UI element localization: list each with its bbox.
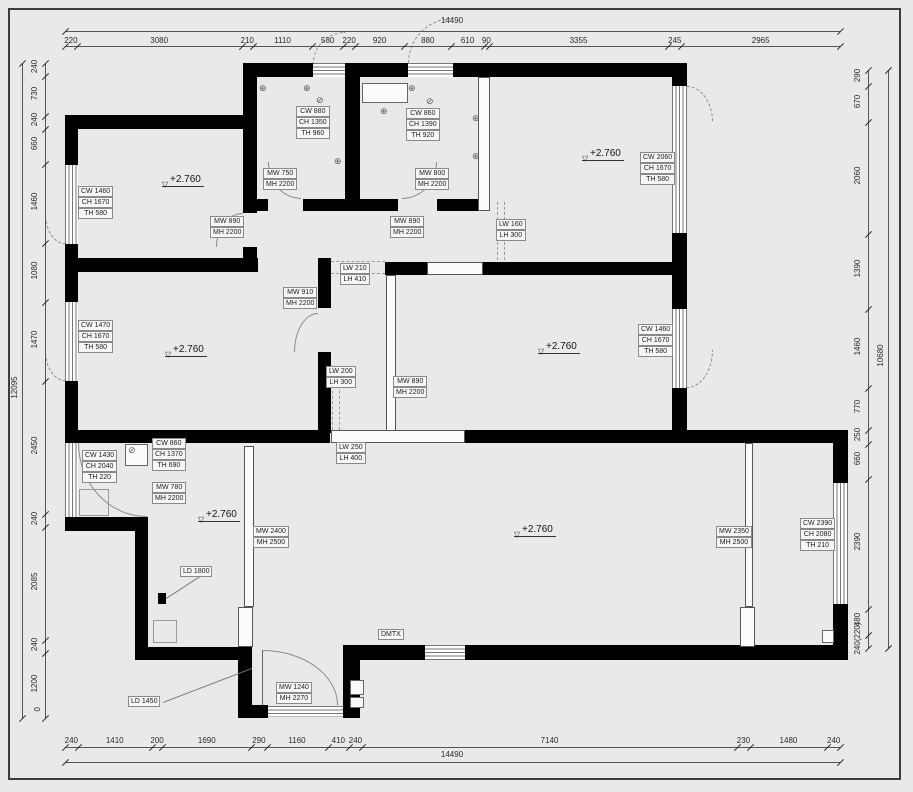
annotation-tag: CW 860CH 1390TH 920	[406, 108, 440, 141]
annotation-tag-line: LD 1800	[180, 566, 212, 577]
fixture-box	[350, 680, 364, 695]
dim-value: 1160	[288, 736, 305, 745]
wall-segment	[672, 63, 687, 88]
dim-value-text: 2060	[853, 166, 862, 184]
dim-value: 880	[421, 36, 434, 45]
annotation-tag-line: CW 2390	[800, 518, 835, 529]
wall-segment	[243, 199, 268, 211]
annotation-tag-line: MH 2200	[210, 227, 244, 238]
annotation-tag-line: MH 2270	[276, 693, 312, 704]
dim-value-text: 290	[853, 69, 862, 82]
annotation-tag: LD 1450	[128, 696, 160, 707]
annotation-tag-line: CW 880	[296, 106, 330, 117]
wall-segment	[385, 262, 427, 275]
dim-value: 240(220)	[853, 623, 862, 660]
annotation-tag: MW 890MH 2200	[390, 216, 424, 238]
dim-value: 580	[321, 36, 334, 45]
annotation-tag-line: CH 1670	[640, 163, 675, 174]
dim-total-left: 12095	[10, 376, 19, 403]
dimension-line	[868, 70, 869, 648]
door-swing-arc	[687, 350, 713, 388]
dim-value: 200	[150, 736, 163, 745]
annotation-tag: LD 1800	[180, 566, 212, 577]
dim-value: 1080	[30, 261, 39, 284]
target-symbol: ⊕	[380, 107, 388, 116]
annotation-tag-line: TH 690	[152, 460, 186, 471]
dim-value-text: 1080	[30, 261, 39, 279]
opening-frame	[478, 77, 490, 211]
annotation-tag-line: CW 860	[152, 438, 186, 449]
leader-line	[166, 576, 200, 599]
annotation-tag-line: LW 210	[340, 263, 370, 274]
level-marker: +2.760▽	[582, 148, 624, 161]
level-marker: +2.760▽	[162, 174, 204, 187]
annotation-tag-line: MH 2200	[390, 227, 424, 238]
annotation-tag-line: MW 890	[393, 376, 427, 387]
annotation-tag: CW 1470CH 1670TH 580	[78, 320, 113, 353]
target-symbol: ⊕	[472, 114, 480, 123]
annotation-tag-line: LD 1450	[128, 696, 160, 707]
dim-value: 1410	[106, 736, 124, 745]
window-symbol	[65, 165, 78, 244]
annotation-tag-line: LH 400	[336, 453, 366, 464]
wall-segment	[243, 63, 315, 77]
wall-segment	[437, 199, 478, 211]
dim-value: 220	[64, 36, 77, 45]
dim-value: 610	[461, 36, 474, 45]
dim-value-text: 1470	[30, 330, 39, 348]
dim-value: 90	[482, 36, 491, 45]
dim-value: 2450	[30, 436, 39, 459]
window-symbol	[268, 706, 343, 717]
target-symbol: ⊕	[259, 84, 267, 93]
dim-value: 240	[349, 736, 362, 745]
annotation-tag-line: CH 1670	[78, 197, 113, 208]
level-triangle-icon: ▽	[582, 154, 588, 163]
dim-tick	[837, 744, 844, 751]
dim-value: 240	[30, 113, 39, 131]
dim-value-text: 660	[30, 137, 39, 150]
wall-segment	[238, 705, 268, 718]
annotation-tag-line: LH 300	[496, 230, 526, 241]
dim-value-text: 770	[853, 400, 862, 413]
dim-value: 7140	[541, 736, 559, 745]
annotation-tag: MW 890MH 2200	[393, 376, 427, 398]
annotation-tag-line: CH 1670	[638, 335, 673, 346]
dim-value: 1480	[780, 736, 798, 745]
annotation-tag-line: LH 410	[340, 274, 370, 285]
wall-segment	[78, 258, 258, 272]
dim-value: 660	[853, 452, 862, 470]
level-value: +2.760	[162, 174, 204, 187]
annotation-tag-line: MH 2200	[152, 493, 186, 504]
dim-tick	[865, 645, 872, 652]
dim-value-text: 660	[853, 452, 862, 465]
annotation-tag-line: MW 890	[390, 216, 424, 227]
dimension-line	[65, 31, 840, 32]
dim-total-right: 10680	[876, 344, 885, 371]
window-symbol	[672, 309, 687, 388]
annotation-tag: CW 1430CH 2040TH 220	[82, 450, 117, 483]
annotation-tag: DMTX	[378, 629, 404, 640]
dim-value: 1110	[274, 36, 291, 45]
wall-segment	[243, 63, 257, 213]
target-symbol: ⊕	[334, 157, 342, 166]
annotation-tag-line: CW 1470	[78, 320, 113, 331]
level-value: +2.760	[198, 509, 240, 522]
annotation-tag-line: LW 200	[326, 366, 356, 377]
dim-value-text: 730	[30, 87, 39, 100]
annotation-tag: MW 780MH 2200	[152, 482, 186, 504]
annotation-tag: LW 200LH 300	[326, 366, 356, 388]
dim-value: 1460	[853, 337, 862, 360]
annotation-tag-line: CW 1460	[78, 186, 113, 197]
wall-segment	[158, 593, 166, 604]
annotation-tag-line: TH 580	[638, 346, 673, 357]
annotation-tag-line: TH 220	[82, 472, 117, 483]
dim-value: 240	[827, 736, 840, 745]
annotation-tag-line: LW 250	[336, 442, 366, 453]
dim-tick	[837, 43, 844, 50]
annotation-tag-line: MH 2500	[716, 537, 752, 548]
annotation-tag: CW 2060CH 1670TH 580	[640, 152, 675, 185]
annotation-tag-line: MH 2200	[415, 179, 449, 190]
wall-segment	[135, 647, 250, 660]
dim-tick	[837, 28, 844, 35]
annotation-tag-line: MW 2400	[253, 526, 289, 537]
dim-value-text: 1460	[853, 337, 862, 355]
annotation-tag: MW 910MH 2200	[283, 287, 317, 309]
dim-value-text: 250	[853, 428, 862, 441]
level-triangle-icon: ▽	[538, 347, 544, 356]
opening-frame	[740, 607, 755, 647]
wall-segment	[345, 77, 360, 211]
opening-frame	[238, 607, 253, 647]
target-symbol: ⊕	[408, 84, 416, 93]
annotation-tag-line: CH 1670	[78, 331, 113, 342]
window-symbol	[672, 86, 687, 122]
dimension-line	[65, 762, 840, 763]
dim-value-text: 2450	[30, 436, 39, 454]
dim-value: 920	[373, 36, 386, 45]
dim-tick	[885, 645, 892, 652]
window-symbol	[313, 63, 345, 77]
wall-segment	[318, 352, 331, 433]
dim-value-text: 2390	[853, 533, 862, 551]
closet-outline	[153, 620, 177, 643]
dim-value: 3080	[150, 36, 168, 45]
wall-segment	[833, 443, 848, 483]
dimension-line	[45, 63, 46, 718]
level-marker: +2.760▽	[538, 341, 580, 354]
dimension-line	[65, 747, 840, 748]
level-marker: +2.760▽	[514, 524, 556, 537]
wall-segment	[358, 199, 398, 211]
wall-segment	[360, 645, 425, 660]
opening-frame	[386, 275, 396, 431]
annotation-tag: CW 1460CH 1670TH 580	[78, 186, 113, 219]
level-triangle-icon: ▽	[165, 350, 171, 359]
annotation-tag-line: MW 750	[263, 168, 297, 179]
wall-segment	[65, 115, 78, 165]
window-symbol	[65, 443, 78, 517]
dim-value: 290	[252, 736, 265, 745]
dim-value: 230	[737, 736, 750, 745]
annotation-tag: MW 800MH 2200	[415, 168, 449, 190]
dim-value-text: 240(220)	[853, 623, 862, 655]
window-symbol	[408, 63, 453, 77]
window-symbol	[425, 645, 465, 660]
target-symbol: ⊕	[472, 152, 480, 161]
door-swing-arc	[45, 351, 65, 381]
window-symbol	[833, 483, 848, 604]
level-marker: +2.760▽	[165, 344, 207, 357]
annotation-tag-line: TH 920	[406, 130, 440, 141]
annotation-tag-line: LH 300	[326, 377, 356, 388]
annotation-tag-line: MH 2200	[393, 387, 427, 398]
annotation-tag-line: TH 580	[78, 342, 113, 353]
annotation-tag-line: MH 2200	[263, 179, 297, 190]
level-triangle-icon: ▽	[198, 515, 204, 524]
level-value: +2.760	[165, 344, 207, 357]
annotation-tag-line: MW 910	[283, 287, 317, 298]
wall-segment	[135, 517, 148, 660]
door-swing-arc	[687, 86, 713, 122]
level-marker: +2.760▽	[198, 509, 240, 522]
dashed-line	[331, 261, 385, 262]
dim-value: 2390	[853, 533, 862, 556]
wall-segment	[483, 262, 672, 275]
annotation-tag-line: CH 1390	[406, 119, 440, 130]
dim-value: 3355	[570, 36, 588, 45]
annotation-tag: MW 750MH 2200	[263, 168, 297, 190]
dim-total-bottom: 14490	[441, 750, 463, 759]
annotation-tag-line: MH 2500	[253, 537, 289, 548]
dimension-line	[22, 63, 23, 718]
dim-value: 2085	[30, 572, 39, 595]
dim-value: 210	[240, 36, 253, 45]
dim-value: 220	[342, 36, 355, 45]
annotation-tag: MW 2350MH 2500	[716, 526, 752, 548]
annotation-tag-line: TH 580	[78, 208, 113, 219]
annotation-tag: CW 2390CH 2080TH 210	[800, 518, 835, 551]
dim-tick	[837, 759, 844, 766]
dim-value: 670	[853, 95, 862, 113]
annotation-tag-line: MW 890	[210, 216, 244, 227]
dim-value: 410	[332, 736, 345, 745]
level-triangle-icon: ▽	[162, 180, 168, 189]
annotation-tag-line: CH 1370	[152, 449, 186, 460]
wall-segment	[345, 63, 408, 77]
annotation-tag-line: MW 2350	[716, 526, 752, 537]
wall-segment	[65, 244, 78, 302]
dimension-line	[888, 70, 889, 648]
dim-value: 730	[30, 87, 39, 105]
annotation-tag-line: CW 2060	[640, 152, 675, 163]
dim-value-text: 240	[30, 113, 39, 126]
floor-plan-page: 14490 14490 12095 10680 0 CW 880CH 1350T…	[0, 0, 913, 792]
annotation-tag-line: MW 800	[415, 168, 449, 179]
door-leaf-line	[262, 650, 263, 705]
annotation-tag: LW 210LH 410	[340, 263, 370, 285]
annotation-tag: MW 1240MH 2270	[276, 682, 312, 704]
wall-segment	[318, 258, 331, 308]
dim-value: 250	[853, 428, 862, 446]
annotation-tag: LW 160LH 300	[496, 219, 526, 241]
dim-value-text: 240	[30, 511, 39, 524]
annotation-tag: MW 2400MH 2500	[253, 526, 289, 548]
annotation-tag-line: MW 1240	[276, 682, 312, 693]
dim-total-top: 14490	[441, 16, 463, 25]
annotation-tag-line: CH 2080	[800, 529, 835, 540]
annotation-tag: MW 890MH 2200	[210, 216, 244, 238]
window-symbol	[65, 302, 78, 381]
annotation-tag-line: MW 780	[152, 482, 186, 493]
annotation-tag-line: TH 210	[800, 540, 835, 551]
annotation-tag-line: MH 2200	[283, 298, 317, 309]
dim-value: 2060	[853, 166, 862, 189]
dim-value-text: 240	[30, 637, 39, 650]
annotation-tag-line: TH 580	[640, 174, 675, 185]
drain-symbol: ⊘	[316, 96, 324, 105]
wall-segment	[65, 115, 257, 129]
wall-segment	[465, 645, 848, 660]
annotation-tag-line: LW 160	[496, 219, 526, 230]
annotation-tag-line: CW 1460	[638, 324, 673, 335]
dim-value: 240	[30, 60, 39, 78]
floor-plan: 14490 14490 12095 10680 0 CW 880CH 1350T…	[0, 0, 913, 792]
dim-value: 660	[30, 137, 39, 155]
wall-segment	[65, 430, 330, 443]
dim-value: 1470	[30, 330, 39, 353]
annotation-tag: LW 250LH 400	[336, 442, 366, 464]
dim-value: 240	[65, 736, 78, 745]
dim-value: 240	[30, 637, 39, 655]
wall-segment	[453, 63, 687, 77]
dim-value-text: 1200	[30, 674, 39, 692]
annotation-tag-line: CH 1350	[296, 117, 330, 128]
level-value: +2.760	[538, 341, 580, 354]
dim-value: 2965	[752, 36, 770, 45]
dim-value: 290	[853, 69, 862, 87]
dim-tick	[19, 715, 26, 722]
wall-segment	[672, 233, 687, 309]
level-value: +2.760	[514, 524, 556, 537]
dim-value: 240	[30, 511, 39, 529]
dim-value-text: 670	[853, 95, 862, 108]
drain-symbol: ⊘	[426, 97, 434, 106]
dim-zero-left: 0	[33, 698, 42, 716]
fixture-box	[822, 630, 834, 643]
dim-value: 245	[668, 36, 681, 45]
door-swing-arc	[294, 313, 318, 352]
dim-value-text: 2085	[30, 572, 39, 590]
annotation-tag-line: CH 2040	[82, 461, 117, 472]
annotation-tag: CW 1460CH 1670TH 580	[638, 324, 673, 357]
annotation-tag-line: TH 960	[296, 128, 330, 139]
dim-value-text: 1390	[853, 260, 862, 278]
annotation-tag: CW 860CH 1370TH 690	[152, 438, 186, 471]
annotation-tag-line: CW 1430	[82, 450, 117, 461]
opening-frame	[745, 443, 753, 607]
dim-value: 770	[853, 400, 862, 418]
fixture-box	[362, 83, 408, 103]
dim-value: 1690	[198, 736, 216, 745]
level-value: +2.760	[582, 148, 624, 161]
opening-frame	[427, 262, 483, 275]
annotation-tag-line: DMTX	[378, 629, 404, 640]
dim-value: 1390	[853, 260, 862, 283]
dim-value-text: 1460	[30, 192, 39, 210]
wall-segment	[465, 430, 672, 443]
drain-symbol: ⊘	[128, 446, 136, 455]
wall-segment	[672, 430, 848, 443]
dim-value-text: 240	[30, 60, 39, 73]
target-symbol: ⊕	[303, 84, 311, 93]
wall-segment	[243, 247, 257, 272]
annotation-tag: CW 880CH 1350TH 960	[296, 106, 330, 139]
annotation-tag-line: CW 860	[406, 108, 440, 119]
level-triangle-icon: ▽	[514, 530, 520, 539]
dim-tick	[42, 715, 49, 722]
dim-value: 1200	[30, 674, 39, 697]
fixture-box	[350, 697, 364, 708]
dim-value: 1460	[30, 192, 39, 215]
